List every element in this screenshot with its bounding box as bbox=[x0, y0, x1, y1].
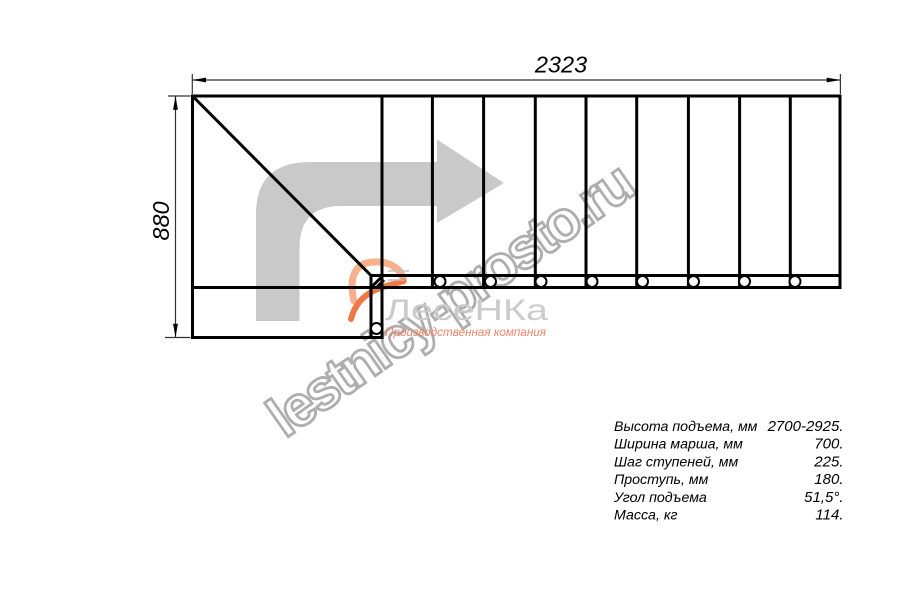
svg-text:Проступь, мм: Проступь, мм bbox=[614, 472, 709, 488]
svg-text:Шаг ступеней, мм: Шаг ступеней, мм bbox=[614, 454, 738, 470]
svg-text:51,5°.: 51,5°. bbox=[804, 489, 843, 506]
svg-text:Угол подъема: Угол подъема bbox=[613, 490, 707, 506]
svg-text:Ширина марша, мм: Ширина марша, мм bbox=[614, 437, 743, 453]
svg-text:880: 880 bbox=[148, 201, 174, 240]
svg-text:Высота подъема, мм: Высота подъема, мм bbox=[614, 419, 758, 435]
svg-text:180.: 180. bbox=[814, 471, 843, 488]
svg-text:2323: 2323 bbox=[534, 52, 587, 78]
svg-text:700.: 700. bbox=[814, 436, 843, 453]
svg-text:ЛесеНКа: ЛесеНКа bbox=[385, 294, 549, 327]
svg-text:114.: 114. bbox=[815, 507, 843, 524]
svg-text:2700-2925.: 2700-2925. bbox=[767, 418, 844, 435]
svg-text:Масса, кг: Масса, кг bbox=[614, 508, 678, 524]
svg-text:225.: 225. bbox=[813, 453, 843, 470]
svg-text:Производственная компания: Производственная компания bbox=[385, 325, 547, 339]
